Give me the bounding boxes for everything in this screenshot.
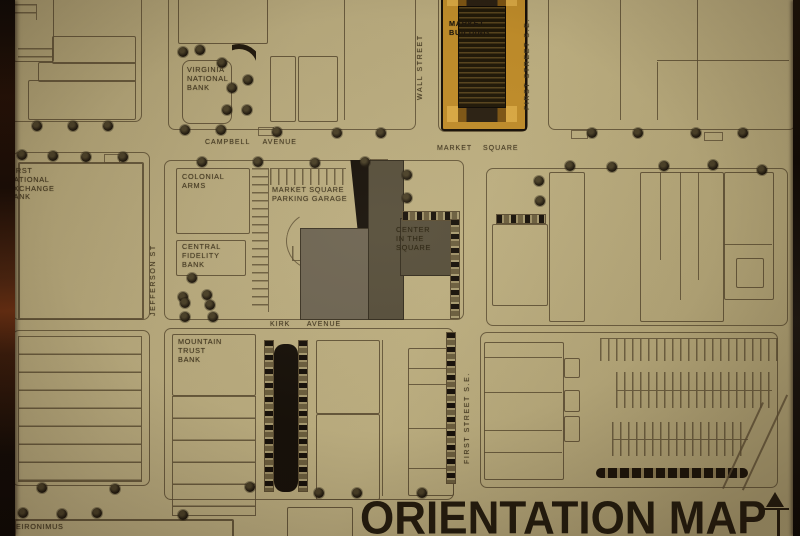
block-divider bbox=[698, 172, 699, 280]
block-outline-top-right bbox=[548, 0, 796, 130]
building-footprint bbox=[270, 56, 296, 122]
photo-border-right bbox=[793, 0, 800, 536]
arcade-dark-strip bbox=[274, 344, 298, 492]
building-label-virginia-national-bank: VIRGINIA NATIONAL BANK bbox=[187, 66, 243, 92]
building-footprint bbox=[298, 56, 338, 122]
tree-icon bbox=[180, 125, 190, 135]
tree-icon bbox=[118, 152, 128, 162]
plaza-arc bbox=[232, 42, 256, 66]
tree-icon bbox=[534, 176, 544, 186]
tree-icon bbox=[216, 125, 226, 135]
street-label-first-street-se-top: FIRST STREET S.E. bbox=[524, 18, 531, 110]
tree-icon bbox=[314, 488, 324, 498]
block-divider bbox=[484, 452, 562, 453]
tree-icon bbox=[607, 162, 617, 172]
street-marker-box bbox=[571, 130, 588, 139]
street-label-kirk-avenue: KIRK AVENUE bbox=[270, 321, 341, 330]
tree-icon bbox=[180, 312, 190, 322]
city-map: VIRGINIA NATIONAL BANK MARKET BUILDING F… bbox=[0, 0, 800, 536]
tree-icon bbox=[757, 165, 767, 175]
pedestrian-walkway bbox=[264, 340, 274, 492]
tree-icon bbox=[178, 510, 188, 520]
tree-icon bbox=[32, 121, 42, 131]
building-row-block bbox=[18, 336, 142, 482]
building-label-heironimus: HEIRONIMUS bbox=[10, 523, 100, 532]
building-footprint bbox=[736, 258, 764, 288]
block-divider bbox=[660, 172, 661, 260]
tree-icon bbox=[360, 157, 370, 167]
building-footprint bbox=[640, 172, 724, 322]
map-photo: VIRGINIA NATIONAL BANK MARKET BUILDING F… bbox=[0, 0, 800, 536]
parking-stalls bbox=[14, 4, 37, 20]
tree-icon bbox=[37, 483, 47, 493]
tree-icon bbox=[708, 160, 718, 170]
building-label-central-fidelity-bank: CENTRAL FIDELITY BANK bbox=[182, 243, 240, 269]
building-footprint bbox=[52, 36, 136, 64]
block-divider bbox=[484, 430, 562, 431]
photo-border-left bbox=[0, 0, 15, 536]
tree-icon bbox=[110, 484, 120, 494]
pedestrian-walkway bbox=[450, 219, 460, 319]
block-divider bbox=[484, 357, 562, 358]
block-divider bbox=[382, 340, 383, 496]
tree-icon bbox=[195, 45, 205, 55]
building-footprint bbox=[178, 0, 268, 44]
building-parking-garage-mass bbox=[300, 228, 372, 320]
street-label-jefferson-st: JEFFERSON ST bbox=[150, 244, 157, 316]
parking-stalls bbox=[252, 168, 269, 312]
street-label-campbell-avenue: CAMPBELL AVENUE bbox=[205, 139, 297, 148]
tree-icon bbox=[659, 161, 669, 171]
tree-icon bbox=[180, 298, 190, 308]
street-label-first-street-se-bottom: FIRST STREET S.E. bbox=[464, 372, 471, 464]
parking-stalls bbox=[612, 422, 748, 456]
pedestrian-walkway bbox=[446, 332, 456, 484]
pedestrian-walkway bbox=[496, 214, 546, 224]
tree-icon bbox=[222, 105, 232, 115]
tree-icon bbox=[17, 150, 27, 160]
tree-icon bbox=[691, 128, 701, 138]
tree-icon bbox=[103, 121, 113, 131]
building-footprint bbox=[549, 172, 585, 322]
north-arrow-icon bbox=[777, 510, 780, 536]
building-footprint bbox=[564, 358, 580, 378]
building-footprint bbox=[38, 62, 136, 82]
tree-icon bbox=[81, 152, 91, 162]
street-label-wall-street: WALL STREET bbox=[417, 34, 424, 100]
building-market-building: MARKET BUILDING bbox=[441, 0, 527, 131]
tree-icon bbox=[565, 161, 575, 171]
building-label-parking-garage: MARKET SQUARE PARKING GARAGE bbox=[272, 186, 368, 204]
building-label-colonial-arms: COLONIAL ARMS bbox=[182, 173, 242, 191]
block-divider bbox=[620, 0, 621, 120]
parking-stalls bbox=[600, 338, 778, 361]
map-title: ORIENTATION MAP bbox=[360, 496, 767, 536]
building-label-mountain-trust-bank: MOUNTAIN TRUST BANK bbox=[178, 338, 244, 364]
tree-icon bbox=[197, 157, 207, 167]
street-marker-box bbox=[704, 132, 723, 141]
building-footprint bbox=[484, 342, 564, 480]
building-footprint bbox=[492, 224, 548, 306]
tree-icon bbox=[48, 151, 58, 161]
market-building-roof-facet bbox=[447, 106, 517, 122]
parking-stalls bbox=[616, 372, 772, 408]
parking-stalls bbox=[270, 168, 346, 185]
tree-icon bbox=[376, 128, 386, 138]
tree-icon bbox=[57, 509, 67, 519]
building-footprint bbox=[287, 507, 353, 536]
block-divider bbox=[657, 62, 658, 120]
building-footprint bbox=[564, 416, 580, 442]
tree-icon bbox=[243, 75, 253, 85]
building-footprint bbox=[28, 80, 136, 120]
building-footprint bbox=[316, 340, 380, 414]
hedge-row bbox=[596, 468, 748, 478]
block-divider bbox=[680, 172, 681, 300]
tree-icon bbox=[178, 47, 188, 57]
tree-icon bbox=[187, 273, 197, 283]
building-row-block bbox=[172, 396, 256, 516]
tree-icon bbox=[205, 300, 215, 310]
tree-icon bbox=[242, 105, 252, 115]
tree-icon bbox=[202, 290, 212, 300]
tree-icon bbox=[633, 128, 643, 138]
tree-icon bbox=[245, 482, 255, 492]
tree-icon bbox=[208, 312, 218, 322]
pedestrian-walkway bbox=[298, 340, 308, 492]
tree-icon bbox=[332, 128, 342, 138]
tree-icon bbox=[587, 128, 597, 138]
building-label-market-building: MARKET BUILDING bbox=[449, 20, 513, 38]
tree-icon bbox=[402, 170, 412, 180]
tree-icon bbox=[253, 157, 263, 167]
block-divider bbox=[344, 0, 345, 120]
block-divider bbox=[724, 244, 772, 245]
tree-icon bbox=[68, 121, 78, 131]
building-label-first-national-exchange-bank: FIRST NATIONAL EXCHANGE BANK bbox=[8, 167, 84, 202]
north-arrow-icon bbox=[763, 508, 789, 510]
block-divider bbox=[657, 60, 789, 61]
street-label-market-square: MARKET SQUARE bbox=[437, 145, 519, 154]
building-footprint bbox=[316, 414, 380, 500]
building-label-center-in-the-square: CENTER IN THE SQUARE bbox=[396, 226, 448, 252]
tree-icon bbox=[18, 508, 28, 518]
tree-icon bbox=[402, 193, 412, 203]
tree-icon bbox=[272, 127, 282, 137]
block-divider bbox=[484, 392, 562, 393]
tree-icon bbox=[92, 508, 102, 518]
tree-icon bbox=[535, 196, 545, 206]
parking-stalls bbox=[18, 48, 53, 60]
building-footprint bbox=[564, 390, 580, 412]
north-arrow-icon bbox=[766, 492, 784, 507]
tree-icon bbox=[310, 158, 320, 168]
tree-icon bbox=[738, 128, 748, 138]
